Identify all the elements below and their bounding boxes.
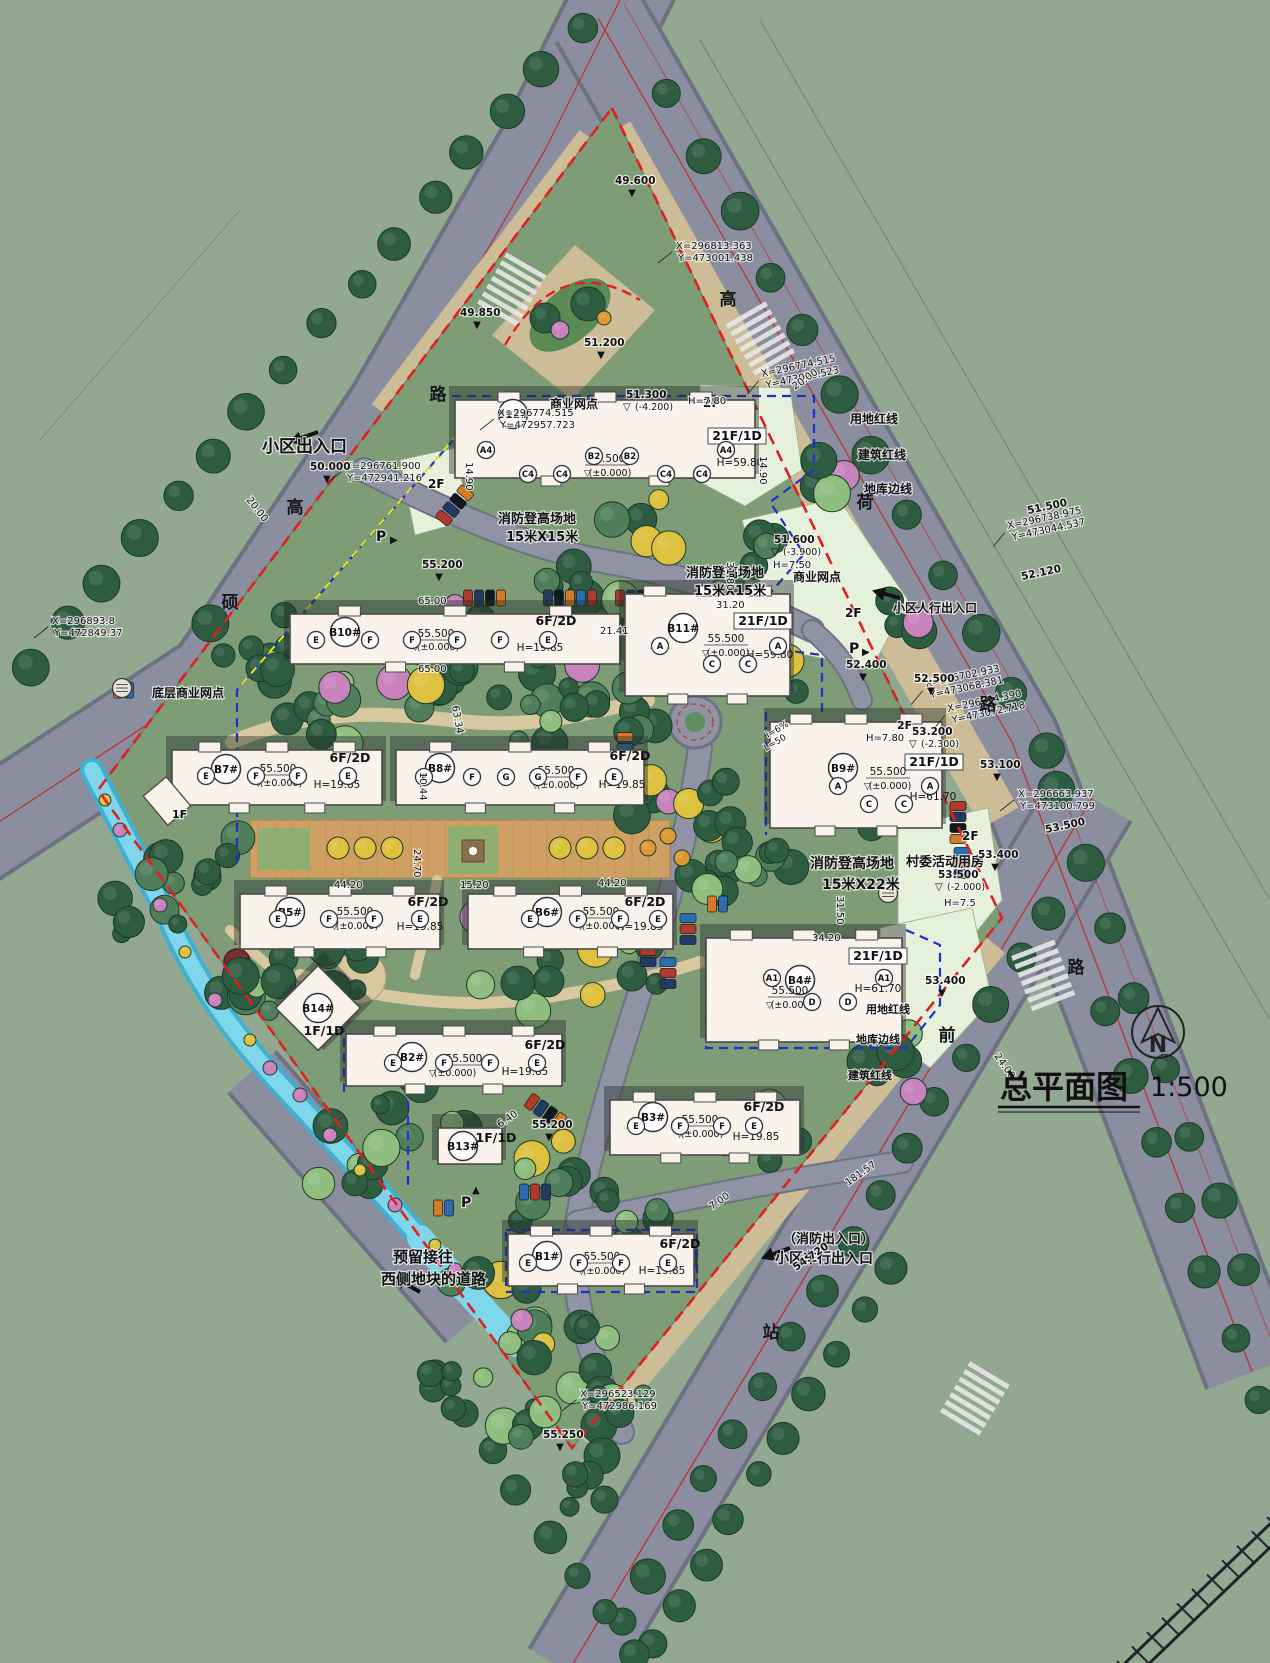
annotation: （消防出入口） <box>783 1231 874 1247</box>
annotation: 2F <box>428 477 445 491</box>
tree <box>1228 1254 1260 1286</box>
annotation: P <box>376 529 386 545</box>
unit-label: F <box>295 772 301 782</box>
building-floors: 6F/2D <box>625 894 666 909</box>
unit-label: E <box>655 915 661 925</box>
tree <box>807 1275 839 1307</box>
building-B3: B3#6F/2DH=19.8555.500▽(±0.000)EFFE <box>604 1086 804 1163</box>
text-label: ▼ <box>545 1132 553 1143</box>
tree <box>215 843 239 867</box>
tree <box>765 838 790 863</box>
building-floors: 21F/1D <box>909 754 959 769</box>
text-label: X=296523.129 <box>580 1389 656 1400</box>
text-label: (±0.000) <box>589 468 632 479</box>
road-name: 高 <box>720 289 737 310</box>
unit-label: A <box>835 782 842 792</box>
text-label: ▼ <box>993 772 1001 783</box>
tree <box>467 971 495 999</box>
tree <box>597 311 611 325</box>
parked-car <box>680 914 696 923</box>
tree <box>549 837 571 859</box>
unit-label: E <box>275 915 281 925</box>
tree <box>474 1368 493 1387</box>
building-floors: 6F/2D <box>408 894 449 909</box>
dimension-label: 31.80 <box>724 562 735 591</box>
drawing-scale: 1:500 <box>1150 1072 1228 1103</box>
parked-car <box>719 896 728 912</box>
tree <box>594 502 629 537</box>
spot-elevation: 55.200 <box>532 1119 573 1131</box>
annotation: 15米X15米 <box>506 529 579 545</box>
tree <box>929 561 958 590</box>
text-label: Y=472941.216 <box>346 473 422 484</box>
unit-label: E <box>203 772 209 782</box>
tree <box>1032 897 1065 930</box>
building-floors: 21F/1D <box>738 613 788 628</box>
unit-label: E <box>527 915 533 925</box>
dimension-label: 15.20 <box>460 880 489 891</box>
annotation: H=7.80 <box>688 396 726 407</box>
tree <box>712 768 739 795</box>
unit-label: E <box>751 1122 757 1132</box>
text-label: ▼ <box>859 672 867 683</box>
dimension-label: 31.20 <box>716 600 745 611</box>
tree <box>490 94 524 128</box>
text-label: ▽ <box>771 547 779 558</box>
annotation: 消防登高场地 <box>498 511 576 527</box>
annotation: 建筑红线 <box>848 1068 892 1082</box>
tree <box>660 828 676 844</box>
tree <box>640 840 656 856</box>
tree <box>892 500 921 529</box>
unit-label: G <box>503 773 510 783</box>
parked-car <box>680 936 696 945</box>
tree <box>269 356 297 384</box>
tree <box>686 139 721 174</box>
annotation: 2F <box>962 829 979 843</box>
parked-car <box>660 958 676 967</box>
tree <box>591 1486 618 1513</box>
unit-label: E <box>665 1259 671 1269</box>
text-label: ▼ <box>473 320 481 331</box>
tree <box>801 442 837 478</box>
parked-car <box>542 1184 551 1200</box>
dimension-label: 44.20 <box>334 880 363 891</box>
spot-elevation: 53.400 <box>978 849 1019 861</box>
text-label: X=296761.900 <box>345 461 421 472</box>
text-label: X=296774.515 <box>498 408 574 419</box>
tree <box>153 898 167 912</box>
tree <box>228 393 265 430</box>
tree <box>563 1462 588 1487</box>
tree <box>371 1095 389 1113</box>
unit-label: E <box>633 1122 639 1132</box>
building-B5: B5#6F/2DH=19.8555.500▽(±0.000)EFFE <box>234 880 448 957</box>
spot-elevation: 53.200 <box>912 726 953 738</box>
unit-label: C <box>709 660 715 670</box>
text-label: ▼ <box>556 1442 564 1453</box>
tree <box>323 1128 337 1142</box>
tree <box>363 1129 400 1166</box>
tree <box>593 1600 617 1624</box>
text-label: Y=473001.438 <box>677 253 753 264</box>
tree <box>517 1340 551 1374</box>
unit-label: F <box>367 636 373 646</box>
unit-label: F <box>409 636 415 646</box>
tree <box>596 1189 619 1212</box>
tree <box>652 531 686 565</box>
building-floors: 6F/2D <box>536 613 577 628</box>
annotation: 用地红线 <box>849 411 898 426</box>
tree <box>83 565 120 602</box>
annotation: 2F <box>845 606 862 620</box>
unit-label: F <box>487 1059 493 1069</box>
text-label: ▽ <box>623 402 631 413</box>
tree <box>263 1061 277 1075</box>
tree <box>663 1510 694 1541</box>
tree <box>575 1315 600 1340</box>
road-name: 站 <box>763 1322 780 1343</box>
unit-label: F <box>617 915 623 925</box>
building-B8: B8#6F/2DH=19.8555.500▽(±0.000)EFGGFE <box>390 736 650 813</box>
tree <box>718 1420 747 1449</box>
text-label: ▼ <box>991 862 999 873</box>
building-floors: 6F/2D <box>330 750 371 765</box>
tree <box>1202 1183 1237 1218</box>
text-label: ▼ <box>435 572 443 583</box>
annotation: 底层商业网点 <box>152 685 224 700</box>
building-elevation: 55.500 <box>708 633 745 645</box>
spot-elevation: 55.200 <box>422 559 463 571</box>
tree <box>354 1164 366 1176</box>
building-id: B7# <box>214 764 238 776</box>
tree <box>963 614 1000 651</box>
tree <box>1095 913 1126 944</box>
road-name: 荷 <box>857 492 874 513</box>
tree <box>580 982 605 1007</box>
tree <box>501 966 535 1000</box>
tree <box>511 1309 533 1331</box>
tree <box>560 693 588 721</box>
building-floors: 21F/1D <box>712 428 762 443</box>
dimension-label: 14.90 <box>463 462 474 491</box>
annotation: P <box>461 1195 471 1211</box>
tree <box>792 1377 825 1410</box>
tree <box>179 946 191 958</box>
unit-label: E <box>611 773 617 783</box>
unit-label: B2 <box>624 452 636 462</box>
parking-arrow-icon: ▲ <box>472 1185 480 1196</box>
tree <box>551 321 569 339</box>
tree <box>293 1088 307 1102</box>
text-label: X=296893.8 <box>52 616 115 627</box>
text-label: X=296813.363 <box>676 241 752 252</box>
building-id: B2# <box>400 1052 424 1064</box>
road-name: 路 <box>980 694 998 715</box>
tree <box>533 966 564 997</box>
tree <box>747 1462 771 1486</box>
tree <box>852 1297 877 1322</box>
unit-label: F <box>618 1259 624 1269</box>
tree <box>349 270 377 298</box>
tree <box>756 263 785 292</box>
tree <box>767 1422 799 1454</box>
tree <box>1222 1324 1250 1352</box>
parking-arrow-icon: ▶ <box>390 535 398 546</box>
unit-label: A <box>927 782 934 792</box>
unit-label: F <box>575 773 581 783</box>
tree <box>603 837 625 859</box>
spot-elevation: 51.200 <box>584 337 625 349</box>
unit-label: C <box>901 800 907 810</box>
unit-label: A1 <box>878 974 891 984</box>
annotation: H=7.80 <box>866 733 904 744</box>
tree <box>674 850 690 866</box>
unit-label: F <box>497 636 503 646</box>
annotation: 地库边线 <box>856 1032 900 1046</box>
annotation: 消防登高场地 <box>810 855 894 872</box>
tree <box>749 1373 777 1401</box>
tree <box>378 228 411 261</box>
tree <box>441 1396 466 1421</box>
tree <box>645 1199 669 1223</box>
text-label: (-3.900) <box>783 547 821 558</box>
spot-elevation: 55.250 <box>543 1429 584 1441</box>
tree <box>514 1158 535 1179</box>
tree <box>713 1504 743 1534</box>
text-label: X=296663.937 <box>1018 789 1094 800</box>
building-id: B13# <box>447 1141 479 1153</box>
unit-label: D <box>844 998 851 1008</box>
building-floors: 6F/2D <box>744 1099 785 1114</box>
unit-label: F <box>719 1122 725 1132</box>
tree <box>420 181 452 213</box>
spot-elevation: 52.400 <box>846 659 887 671</box>
text-label: (-2.000) <box>947 882 985 893</box>
tree <box>113 823 127 837</box>
unit-label: E <box>534 1059 540 1069</box>
parked-car <box>520 1184 529 1200</box>
spot-elevation: 49.850 <box>460 307 501 319</box>
tree <box>560 1497 579 1516</box>
tree <box>121 519 158 556</box>
tree <box>354 837 376 859</box>
unit-label: F <box>575 915 581 925</box>
tree <box>208 993 222 1007</box>
parked-car <box>680 925 696 934</box>
building-B6: B6#6F/2DH=19.8555.500▽(±0.000)EFFE <box>462 880 677 957</box>
tree <box>1029 733 1064 768</box>
unit-label: A <box>657 642 664 652</box>
tree <box>953 1044 980 1071</box>
annotation: 小区人行出入口 <box>893 600 977 615</box>
tree <box>381 837 403 859</box>
site-plan-drawing: B12#21F/1DH=59.8055.500▽(±0.000)A4C4C4B2… <box>0 0 1270 1663</box>
spot-elevation: 51.300 <box>626 389 667 401</box>
unit-label: C4 <box>660 470 672 480</box>
tree <box>1091 997 1120 1026</box>
tree <box>534 1521 566 1553</box>
unit-label: E <box>313 636 319 646</box>
tree <box>195 859 221 885</box>
unit-label: C4 <box>696 470 708 480</box>
dimension-label: 34.20 <box>812 933 841 944</box>
text-label: ▼ <box>323 474 331 485</box>
road-name: 高 <box>287 497 304 518</box>
road-name: 前 <box>939 1025 956 1046</box>
annotation: 2F <box>897 719 912 732</box>
spot-elevation: 50.000 <box>310 461 351 473</box>
tree <box>734 856 761 883</box>
building-floors: 1F/1D <box>304 1023 345 1038</box>
spot-elevation: 51.600 <box>774 534 815 546</box>
building-floors: 6F/2D <box>660 1236 701 1251</box>
drawing-title: 总平面图 <box>1000 1068 1128 1106</box>
tree <box>814 475 851 512</box>
dimension-label: 10.44 <box>417 772 428 801</box>
text-label: (±0.000) <box>869 781 912 792</box>
annotation: 小区出入口 <box>262 436 347 457</box>
annotation: 商业网点 <box>793 569 841 584</box>
dimension-label: 21.41 <box>600 626 629 637</box>
site-plan-svg: B12#21F/1DH=59.8055.500▽(±0.000)A4C4C4B2… <box>0 0 1270 1663</box>
tree <box>824 1341 850 1367</box>
text-label: N <box>1149 1033 1167 1058</box>
tree <box>521 695 541 715</box>
annotation: 1F <box>172 808 187 821</box>
tree <box>307 309 336 338</box>
unit-label: A <box>775 642 782 652</box>
unit-label: F <box>253 772 259 782</box>
annotation: 村委活动用房 <box>906 854 984 870</box>
unit-label: B2 <box>588 452 600 462</box>
building-floors: 6F/2D <box>525 1037 566 1052</box>
dimension-label: 14.90 <box>757 456 768 485</box>
road-name: 硕 <box>222 593 239 613</box>
tree <box>630 1559 665 1594</box>
tree <box>690 1466 716 1492</box>
tree <box>973 986 1009 1022</box>
text-label: ▽ <box>935 882 943 893</box>
annotation: 15米X22米 <box>822 876 901 893</box>
text-label: ▼ <box>597 350 605 361</box>
road-name: 路 <box>430 384 448 405</box>
building-B2: B2#6F/2DH=19.8555.500▽(±0.000)EFFE <box>340 1020 566 1094</box>
building-id: B14# <box>302 1003 334 1015</box>
unit-label: F <box>677 1122 683 1132</box>
tree <box>565 1563 590 1588</box>
tree <box>1188 1256 1220 1288</box>
tree <box>113 906 144 937</box>
text-label: ▽ <box>909 739 917 750</box>
tree <box>652 79 680 107</box>
tree <box>787 314 818 345</box>
unit-label: E <box>390 1059 396 1069</box>
unit-label: F <box>441 1059 447 1069</box>
parked-car <box>640 958 656 967</box>
tree <box>568 13 597 42</box>
parked-car <box>445 1200 454 1216</box>
dimension-label: 24.70 <box>411 849 422 878</box>
unit-label: A4 <box>720 446 733 456</box>
parked-car <box>708 896 717 912</box>
parked-car <box>434 1200 443 1216</box>
text-label: Y=472849.37 <box>53 628 123 639</box>
unit-label: E <box>525 1259 531 1269</box>
parked-car <box>660 969 676 978</box>
tree <box>663 1590 695 1622</box>
annotation: 建筑红线 <box>857 447 906 462</box>
unit-label: F <box>576 1259 582 1269</box>
tree <box>523 51 558 86</box>
annotation: H=7.50 <box>773 560 811 571</box>
tree <box>450 136 483 169</box>
tree <box>417 1361 443 1387</box>
text-label: (-2.300) <box>921 739 959 750</box>
tree <box>1067 844 1104 881</box>
dimension-label: 65.00 <box>418 596 447 607</box>
unit-label: A1 <box>766 974 779 984</box>
unit-label: C <box>745 660 751 670</box>
spot-elevation: 52.500 <box>914 673 955 685</box>
tree <box>540 710 562 732</box>
unit-label: E <box>545 636 551 646</box>
tree <box>508 1424 533 1449</box>
building-id: B10# <box>329 627 361 639</box>
parked-car <box>660 980 676 989</box>
tree <box>169 915 187 933</box>
unit-label: F <box>454 636 460 646</box>
tree <box>551 1129 575 1153</box>
tree <box>196 439 230 473</box>
tree <box>1142 1128 1172 1158</box>
unit-label: A4 <box>480 446 493 456</box>
text-label: (-4.200) <box>635 402 673 413</box>
building-floors: 21F/1D <box>853 948 903 963</box>
unit-label: F <box>326 915 332 925</box>
tree <box>576 837 598 859</box>
tree <box>721 192 759 230</box>
tree <box>691 1549 723 1581</box>
tree <box>12 649 49 686</box>
tree <box>164 481 193 510</box>
tree <box>442 1362 461 1381</box>
tree <box>715 851 738 874</box>
building-floors: 1F/1D <box>476 1130 517 1145</box>
text-label: ▼ <box>927 686 935 697</box>
building-elevation: 55.500 <box>772 985 809 997</box>
tree <box>892 1133 922 1163</box>
tree <box>327 837 349 859</box>
spot-elevation: 49.600 <box>615 175 656 187</box>
spot-elevation: 53.100 <box>980 759 1021 771</box>
building-id: B3# <box>641 1112 665 1124</box>
dimension-label: 65.00 <box>418 664 447 675</box>
unit-label: D <box>808 998 815 1008</box>
unit-label: C <box>866 800 872 810</box>
building-B10: B10#6F/2DH=19.8555.500▽(±0.000)EFFFFE <box>284 600 624 672</box>
unit-label: F <box>469 773 475 783</box>
road-name: 路 <box>1068 957 1086 978</box>
building-B7: B7#6F/2DH=19.8555.500▽(±0.000)EFFE <box>166 736 386 813</box>
tree <box>501 1475 531 1505</box>
building-floors: 6F/2D <box>610 748 651 763</box>
annotation: P <box>849 641 859 657</box>
tree <box>1175 1123 1204 1152</box>
tree <box>866 1181 895 1210</box>
text-label: ▼ <box>628 188 636 199</box>
text-label: Y=472957.723 <box>499 420 575 431</box>
